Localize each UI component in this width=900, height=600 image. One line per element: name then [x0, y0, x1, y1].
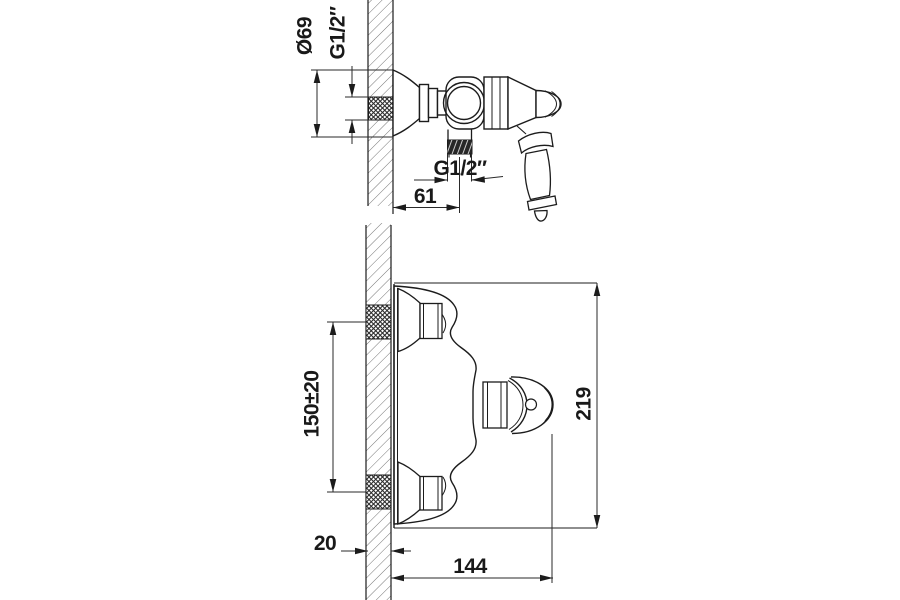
drawing-page: Ø69 G1/2″ G1/2″ 61 [0, 0, 900, 600]
dim-inlet-spacing: 150±20 [301, 322, 367, 492]
dim-projection-label: 144 [453, 555, 487, 578]
side-view: Ø69 G1/2″ G1/2″ 61 [294, 0, 562, 221]
dim-wall-thickness-label: 20 [314, 532, 336, 555]
plan-screw-hole [526, 399, 537, 410]
dim-wall-thickness: 20 [314, 532, 411, 555]
side-wall-thread-stub [369, 97, 394, 120]
plan-wall-thread-stub-bottom [366, 475, 391, 509]
dim-outlet-thread-label: G1/2″ [433, 157, 487, 180]
side-nut [429, 89, 438, 118]
side-outlet-thread [448, 130, 473, 158]
plan-wall-section [366, 223, 391, 600]
dim-inlet-spacing-label: 150±20 [301, 371, 324, 438]
dim-outlet-thread: G1/2″ [414, 154, 503, 183]
plan-handle-dome [508, 377, 553, 434]
dim-overall-length: 219 [573, 283, 601, 528]
technical-drawing: Ø69 G1/2″ G1/2″ 61 [0, 0, 900, 600]
side-escutcheon [393, 70, 420, 136]
dim-escutcheon-diameter-label: Ø69 [294, 17, 317, 55]
side-handle [517, 126, 557, 221]
side-wall-section [368, 0, 393, 214]
dim-wall-thread: G1/2″ [327, 6, 372, 144]
dim-wall-thread-label: G1/2″ [327, 6, 350, 60]
dim-wall-to-outlet-label: 61 [414, 185, 437, 208]
plan-view: 150±20 219 20 144 [301, 223, 601, 600]
plan-cartridge [483, 382, 507, 428]
side-faucet-body [393, 70, 561, 136]
side-dome-cap [536, 91, 561, 118]
plan-wall-thread-stub-top [366, 305, 391, 339]
dim-overall-length-label: 219 [573, 387, 596, 421]
